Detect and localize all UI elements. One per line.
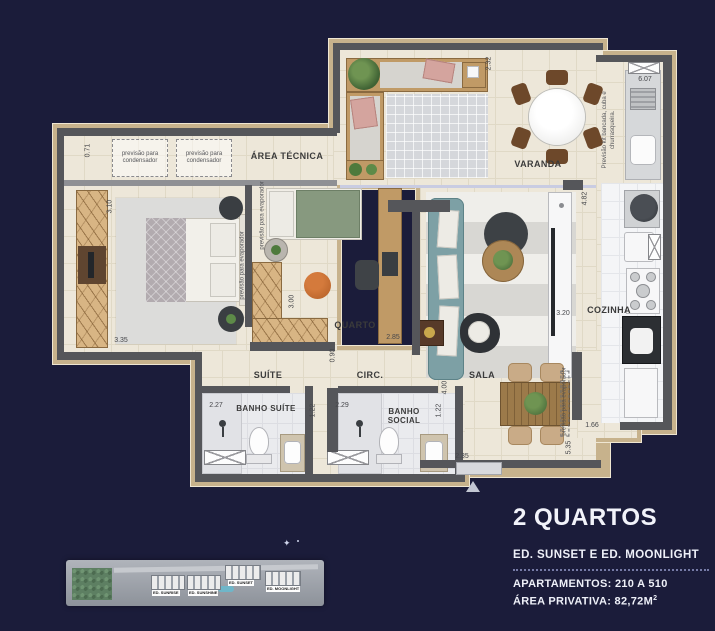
wall-banhos-bottom <box>195 474 465 482</box>
dim-1-22-suite: 1.22 <box>310 396 317 426</box>
label-suite: SUÍTE <box>243 370 293 380</box>
dining-chair-3 <box>508 426 532 445</box>
wall-banho-social-top <box>338 386 438 393</box>
brochure-page: { "info": { "title": "2 QUARTOS", "subti… <box>0 0 715 631</box>
dim-5-35: 5.35 <box>566 433 573 463</box>
sparkle-dot <box>297 540 299 542</box>
stove-burner-2 <box>646 272 656 282</box>
site-green-strip <box>72 568 112 600</box>
sala-armchair-seat <box>468 321 490 343</box>
condensador-note-1: previsão para condensador <box>117 151 163 165</box>
dim-0-71: 0.71 <box>85 136 92 166</box>
site-chip-sunset: ED. SUNSET <box>228 580 254 586</box>
stove-burner-1 <box>630 272 640 282</box>
private-area-text: ÁREA PRIVATIVA: 82,72M <box>513 596 653 608</box>
sala-sofa-cushion-1 <box>437 209 460 248</box>
varanda-shelf-plant-1 <box>349 163 362 176</box>
plan-title: 2 QUARTOS <box>513 504 713 532</box>
varanda-chair-1 <box>546 70 568 85</box>
private-area-sup: 2 <box>653 595 657 602</box>
label-circ: CIRC. <box>348 370 392 380</box>
wall-left <box>57 128 64 360</box>
label-sala: SALA <box>460 370 504 380</box>
label-banho-social: BANHO SOCIAL <box>374 407 434 425</box>
entry-arrow-icon <box>466 481 480 492</box>
dim-2-29: 2.29 <box>327 402 357 409</box>
wall-quarto-bottom <box>250 342 335 351</box>
banho-social-shower-stem <box>359 427 361 437</box>
banho-suite-toilet-tank <box>247 455 271 463</box>
label-quarto: QUARTO <box>325 320 385 330</box>
wall-sala-bottom <box>420 460 601 468</box>
dining-table-plant <box>524 392 547 415</box>
varanda-side-table-lamp <box>467 66 479 78</box>
wall-niche <box>572 352 582 420</box>
apartments-line: APARTAMENTOS: 210 A 510 <box>513 578 713 590</box>
shaft-banho-social <box>327 450 369 465</box>
kitchen-sink <box>630 328 653 354</box>
banho-suite-shower-head <box>219 420 226 427</box>
dim-2-85: 2.85 <box>378 334 408 341</box>
site-pool <box>218 586 234 592</box>
varanda-plant <box>348 58 380 90</box>
stove-burner-5 <box>646 300 656 310</box>
wall-sala-t-bar <box>388 200 450 212</box>
dim-2-27: 2.27 <box>201 402 231 409</box>
wall-varanda-door-jamb <box>563 180 583 190</box>
stove-burner-3 <box>636 284 650 298</box>
churrasqueira-grill <box>630 88 656 110</box>
banho-suite-sink <box>284 441 301 464</box>
sala-tv <box>551 228 555 336</box>
banho-social-toilet-tank <box>377 455 401 463</box>
kitchen-fridge <box>624 368 658 418</box>
evaporador-note-suite: previsão para evaporador <box>239 236 246 300</box>
dim-3-35: 3.35 <box>106 337 136 344</box>
wall-right <box>663 55 672 430</box>
sala-coffee-table-plant <box>493 250 513 270</box>
evaporador-note-quarto: previsão para evaporador <box>259 186 266 250</box>
wall-varanda-top <box>333 43 603 50</box>
wall-banho-suite-top <box>202 386 290 393</box>
dim-2-32: 2.32 <box>486 49 493 79</box>
condensador-box-1: previsão para condensador <box>112 139 168 177</box>
dim-6-07: 6.07 <box>630 76 660 83</box>
suite-bed-duvet <box>146 218 186 302</box>
quarto-laptop <box>382 252 398 276</box>
wall-quarto-sala <box>412 212 420 355</box>
label-cozinha: COZINHA <box>581 305 637 315</box>
wall-banhos-left <box>195 352 202 482</box>
suite-nightstand-1 <box>219 196 243 220</box>
site-building-moonlight <box>266 572 300 585</box>
quarto-pillow <box>269 191 294 237</box>
banho-social-shower-head <box>356 420 363 427</box>
site-plan: ED. SUNRISE ED. SUNSHINE ED. SUNSET ED. … <box>66 548 324 612</box>
wall-right-strip-top <box>596 55 672 62</box>
kitchen-washer-drum <box>630 194 658 222</box>
label-banho-suite: BANHO SUÍTE <box>236 404 296 413</box>
dim-4-82: 4.82 <box>582 184 589 214</box>
quarto-duvet <box>296 190 360 238</box>
varanda-dining-table <box>529 89 585 145</box>
info-block: 2 QUARTOS ED. SUNSET E ED. MOONLIGHT APA… <box>513 504 713 608</box>
quarto-pouf <box>304 272 331 299</box>
condensador-note-2: previsão para condensador <box>181 151 227 165</box>
sparkle-icon: ✦ <box>283 538 291 549</box>
wall-cozinha-bottom <box>620 422 672 430</box>
wall-suite-bottom <box>57 352 202 360</box>
kit-bancada-note: Previsão kit bancada, cuba e churrasquei… <box>602 72 618 188</box>
dim-1-66: 1.66 <box>577 422 607 429</box>
wall-banho-social-right <box>455 386 463 474</box>
wall-varanda-left <box>333 43 340 133</box>
site-building-sunset <box>226 566 260 579</box>
suite-tv <box>88 252 94 278</box>
dim-4-00: 4.00 <box>442 373 449 403</box>
banho-social-toilet <box>380 428 398 455</box>
quarto-chair <box>355 260 379 290</box>
churrasqueira-vent <box>628 62 660 74</box>
kitchen-vent-box <box>648 234 661 260</box>
shaft-banho-suite <box>204 450 246 465</box>
banho-suite-toilet <box>250 428 268 455</box>
plan-subtitle: ED. SUNSET E ED. MOONLIGHT <box>513 549 713 561</box>
evaporador-note-sala: previsão para evaporador <box>560 371 569 437</box>
suite-pillow-2 <box>210 263 236 297</box>
dim-3-00: 3.00 <box>289 287 296 317</box>
label-varanda: VARANDA <box>498 159 578 169</box>
quarto-side-table-plant <box>271 245 281 255</box>
site-chip-sunrise: ED. SUNRISE <box>152 590 180 596</box>
suite-pillow-1 <box>210 223 236 257</box>
varanda-shelf-plant-2 <box>366 164 377 175</box>
wall-banho-social-left <box>327 388 338 452</box>
sala-sofa-cushion-2 <box>437 255 459 300</box>
site-building-sunshine <box>188 576 220 589</box>
site-building-sunrise <box>152 576 184 589</box>
churrasqueira-sink <box>630 135 656 165</box>
suite-nightstand-plant <box>226 314 236 324</box>
dim-3-20: 3.20 <box>548 310 578 317</box>
sala-side-table-lamp <box>424 327 435 338</box>
banho-suite-shower-stem <box>222 427 224 437</box>
label-area-tecnica: ÁREA TÉCNICA <box>232 151 342 161</box>
site-chip-sunshine: ED. SUNSHINE <box>188 590 218 596</box>
wall-area-tecnica-bottom <box>64 180 337 186</box>
dotted-separator <box>513 569 709 571</box>
wall-top-left-wing <box>57 128 337 136</box>
dining-chair-1 <box>508 363 532 382</box>
sala-tv-panel-knob <box>559 203 564 208</box>
site-chip-moonlight: ED. MOONLIGHT <box>266 586 300 592</box>
dim-2-35: 2.35 <box>447 453 477 460</box>
varanda-rug <box>386 94 488 178</box>
private-area-line: ÁREA PRIVATIVA: 82,72M2 <box>513 595 713 608</box>
dim-0-90: 0.90 <box>330 341 337 371</box>
dim-3-10: 3.10 <box>107 192 114 222</box>
entry-door-sill <box>456 462 502 475</box>
condensador-box-2: previsão para condensador <box>176 139 232 177</box>
varanda-cushion-2 <box>350 96 378 129</box>
